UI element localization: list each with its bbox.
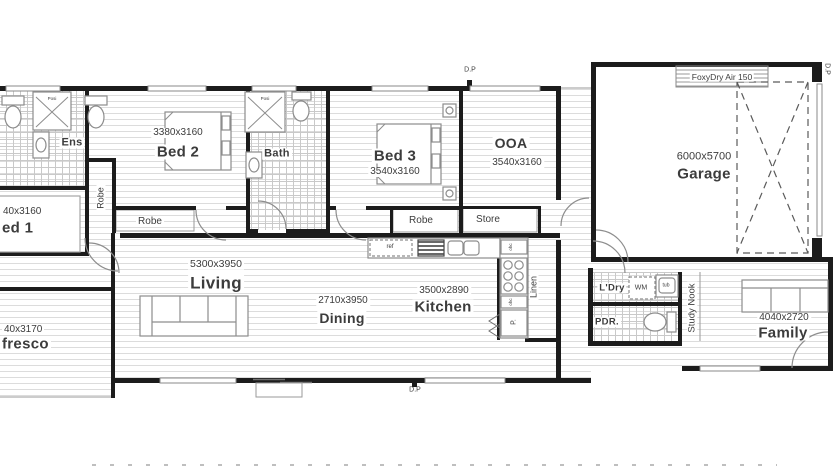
foxydry-label: FoxyDry Air 150 xyxy=(690,73,754,82)
room-dims-bed3: 3540x3160 xyxy=(368,167,422,177)
cooktop xyxy=(501,258,527,294)
sink-bowl-2 xyxy=(464,241,479,255)
room-dims-kitchen: 3500x2890 xyxy=(417,286,471,296)
room-dims-family: 4040x2720 xyxy=(757,313,811,323)
bed2-bed xyxy=(165,112,231,170)
room-dims-living: 5300x3950 xyxy=(188,259,244,270)
room-dims-ooa: 3540x3160 xyxy=(490,158,544,168)
downpipe-label-right: D.P xyxy=(824,61,831,77)
cut-off-text-strip xyxy=(92,464,777,466)
room-dims-dining: 2710x3950 xyxy=(316,296,370,306)
room-label-family: Family xyxy=(756,326,809,341)
powder-label: PDR. xyxy=(593,317,621,327)
washing-machine-label: WM xyxy=(633,285,649,292)
room-dims-bed2: 3380x3160 xyxy=(151,128,205,138)
shower-posi-label-1: Posi xyxy=(46,97,59,102)
family-sofa xyxy=(742,280,828,312)
store-label: Store xyxy=(474,215,502,225)
downpipe-label-top: D.P xyxy=(462,67,478,74)
robe-label-hall: Robe xyxy=(136,217,164,227)
vanity-bath xyxy=(246,152,262,178)
room-label-kitchen: Kitchen xyxy=(412,300,473,315)
pantry-label: P. xyxy=(511,317,518,327)
robe-label-kitchen: Robe xyxy=(407,216,435,226)
tub-label: tub xyxy=(661,284,672,289)
toilet-powder xyxy=(644,312,676,332)
living-sofa xyxy=(140,296,248,336)
oven xyxy=(418,240,444,256)
laundry-label: L'Dry xyxy=(597,283,626,293)
room-dims-garage: 6000x5700 xyxy=(675,152,733,163)
vanity-ensuite xyxy=(33,132,49,158)
room-label-ens: Ens xyxy=(59,138,84,149)
floor-plan: Ens 3380x3160 Bed 2 Bath Bed 3 3540x3160… xyxy=(0,0,835,467)
room-label-alfresco: fresco xyxy=(0,337,51,352)
shower-posi-label-2: Posi xyxy=(259,97,272,102)
fridge-label: ref xyxy=(384,244,395,250)
overhead-cupboard-label-1: ohc xyxy=(509,241,514,252)
room-label-garage: Garage xyxy=(675,167,733,182)
study-nook-label: Study Nook xyxy=(687,281,697,334)
room-label-bed1: ed 1 xyxy=(0,221,35,236)
room-dims-bed1: 40x3160 xyxy=(1,207,43,217)
floor-plan-linework xyxy=(0,0,835,467)
linen-label: Linen xyxy=(530,274,539,300)
sink-bowl-1 xyxy=(448,241,463,255)
downpipe-label-bottom: D.P xyxy=(407,387,423,394)
room-label-bath: Bath xyxy=(262,149,292,160)
overhead-cupboard-label-2: ohc xyxy=(509,296,514,307)
room-label-bed2: Bed 2 xyxy=(155,145,201,160)
room-label-ooa: OOA xyxy=(493,136,530,150)
room-label-dining: Dining xyxy=(317,311,366,325)
toilet-bath xyxy=(292,92,311,121)
room-label-living: Living xyxy=(188,275,244,292)
room-label-bed3: Bed 3 xyxy=(372,149,418,164)
robe-label-vertical: Robe xyxy=(97,185,106,211)
room-dims-alfresco: 40x3170 xyxy=(2,325,44,335)
